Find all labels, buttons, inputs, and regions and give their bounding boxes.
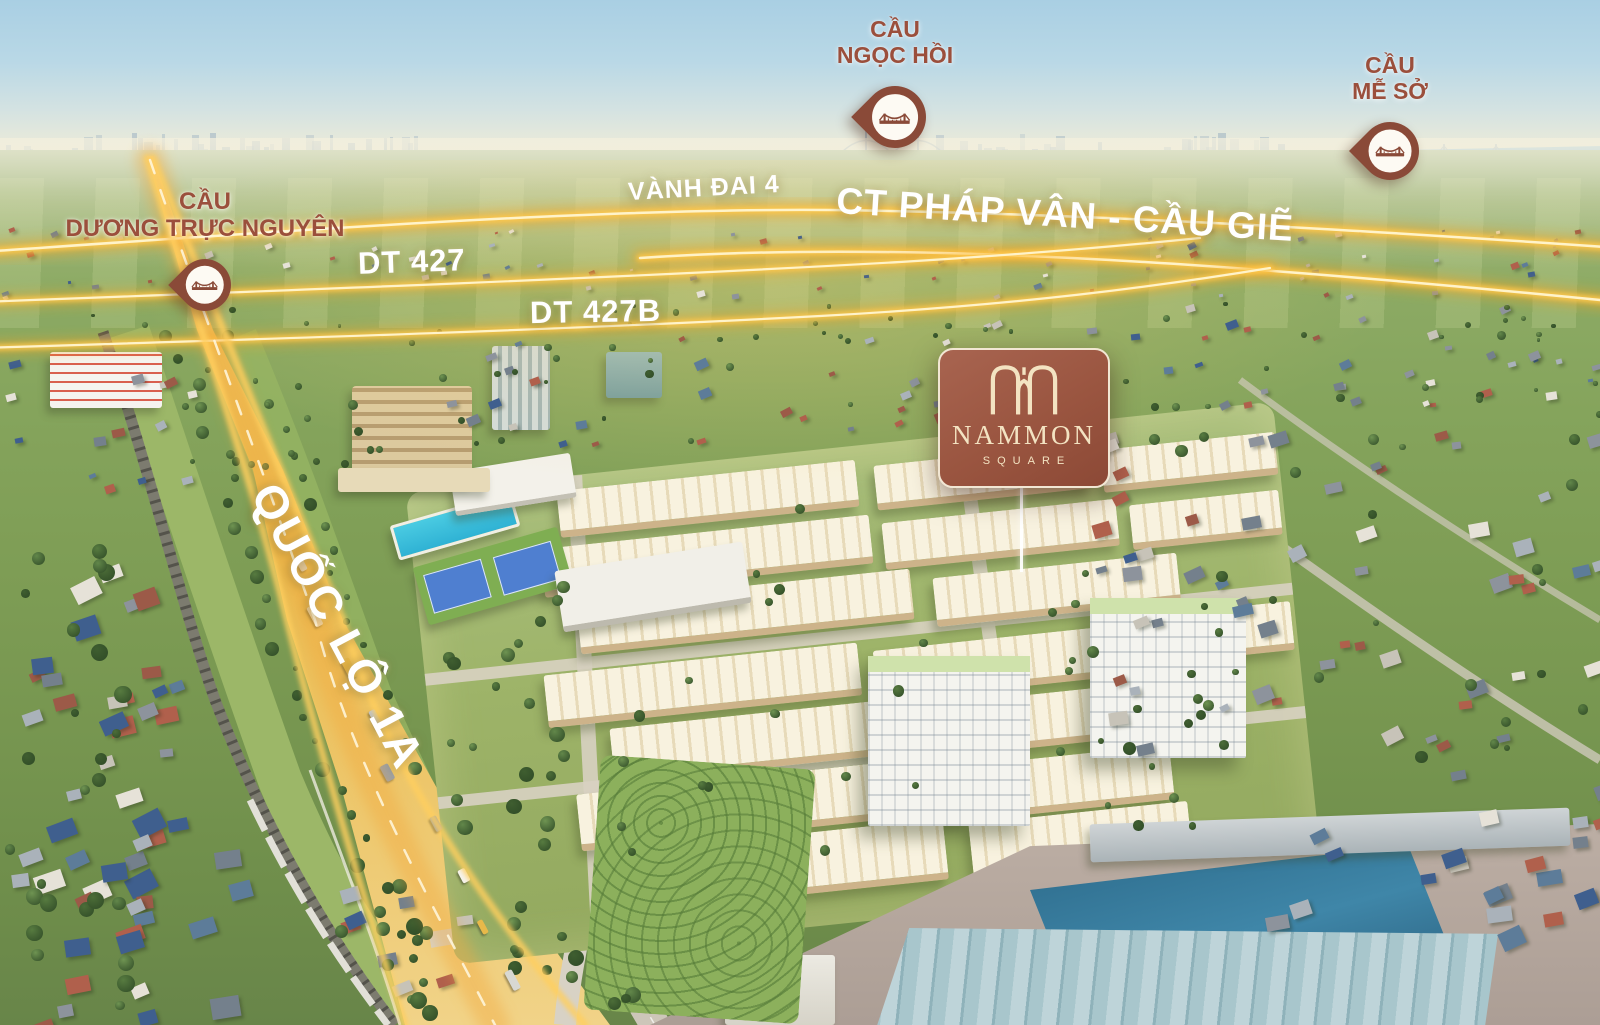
road-label-dt-427: DT 427 [357,242,466,282]
house [1553,245,1557,248]
house [504,265,510,270]
house [1136,742,1155,757]
house [800,415,808,422]
tree [540,816,556,832]
tree [553,355,560,362]
tree [1105,802,1111,808]
house [27,251,36,258]
tree [822,331,826,335]
tree [1536,332,1541,337]
road-label-dt-427b: DT 427B [530,293,662,331]
masterplan-aerial-map: VÀNH ĐAI 4 CT PHÁP VÂN - CẦU GIẼ DT 427 … [0,0,1600,1025]
tree [552,595,563,606]
tree [330,546,339,555]
tree [841,772,851,782]
house [803,260,810,266]
house [575,420,588,430]
house [446,400,457,408]
tree [1205,404,1211,410]
vehicle [429,815,443,832]
bridge-icon [872,95,918,141]
tree [542,965,552,975]
house [15,437,24,444]
tree [1566,479,1579,492]
house [1431,291,1438,296]
house [1218,400,1230,411]
tree [341,460,349,468]
tree [422,1005,438,1021]
house [1385,279,1390,284]
tree [1336,394,1344,402]
tree [546,771,556,781]
tree [32,552,45,565]
tree [182,403,189,410]
house [1261,388,1269,395]
tree [91,644,108,661]
house [1573,887,1598,909]
tree [1232,669,1239,676]
tree [494,371,500,377]
house [137,1009,159,1025]
house [1146,267,1150,271]
tree [1264,366,1268,370]
tree [912,782,919,789]
house [1289,899,1313,920]
tree [250,570,264,584]
tree [1048,608,1057,617]
house [1572,565,1591,579]
tree [1476,396,1483,403]
house [1425,734,1438,744]
tree [1082,570,1089,577]
tree [1596,411,1600,418]
tree [439,374,447,382]
tree [645,370,654,379]
house [1508,362,1517,369]
house [163,377,177,389]
house [1185,304,1196,314]
house [1183,566,1206,585]
tree [1149,434,1160,445]
tree [519,767,534,782]
house [1468,521,1490,538]
house [678,336,686,343]
map-pin-icon [1361,109,1419,193]
house [1045,261,1052,267]
tree [492,682,500,690]
tree [397,930,406,939]
house [138,477,147,485]
tree [535,616,546,627]
tree [888,316,893,321]
tree [1415,751,1428,764]
tree [374,906,386,918]
tree [87,892,104,909]
tree [437,329,442,334]
house [1525,856,1546,874]
tree [115,1001,124,1010]
house [1189,251,1198,259]
tree [248,461,255,468]
house [1194,362,1203,369]
house [1219,703,1230,712]
house [167,817,189,832]
house [398,896,415,909]
house [1361,254,1365,257]
house [31,657,54,675]
house [696,290,705,298]
house [1243,401,1252,409]
vehicle [476,919,489,935]
tree [313,458,320,465]
house [897,406,905,413]
house [1092,521,1113,539]
house [1323,292,1329,298]
house [486,352,499,362]
house [864,336,875,344]
house [1268,431,1290,449]
house [11,873,30,888]
house [210,995,242,1020]
house [1573,836,1589,849]
house [1381,725,1404,746]
tree [1569,434,1580,445]
house [780,407,793,418]
house [1594,781,1600,801]
tree [95,753,107,765]
house [339,886,361,904]
house [488,398,502,410]
house [1312,335,1320,341]
house [937,259,944,264]
tree [568,950,584,966]
house [515,341,522,347]
tree [409,954,418,963]
house [1358,316,1367,324]
tree [1098,738,1104,744]
tree [118,955,134,971]
tree [1465,679,1477,691]
tree [795,504,805,514]
tree [1301,332,1307,338]
tree [514,639,523,648]
house [1232,603,1254,618]
nammon-monogram-icon [987,362,1061,418]
house [988,247,995,253]
house [1319,659,1335,670]
project-badge: NAMMON SQUARE [938,348,1110,488]
tree [1439,335,1443,339]
house [1436,740,1451,753]
house [88,472,96,479]
house [152,684,168,698]
tree [1537,670,1546,679]
house [1339,359,1352,371]
house [57,1004,74,1018]
tree [1504,305,1509,310]
tree [295,383,302,390]
house [1312,269,1320,275]
house [1156,254,1161,258]
house [1325,847,1344,862]
house [116,787,145,809]
house [1324,482,1343,496]
tree [544,344,551,351]
badge-pointer-line [1020,484,1023,572]
tree [827,304,831,308]
house [1122,565,1142,582]
tree [474,441,479,446]
tree [292,690,303,701]
house [1095,566,1107,575]
house [900,391,912,401]
house [1219,294,1224,297]
tree [648,358,653,363]
tree [1532,564,1542,574]
house [960,258,965,262]
tree [501,648,515,662]
tree [893,685,904,696]
house [1587,379,1593,383]
tree [1368,434,1380,446]
house [1339,640,1350,648]
tree [538,838,551,851]
tree [114,686,131,703]
house [1257,620,1279,639]
tree [222,330,234,342]
house [160,749,174,758]
tree [312,738,318,744]
tree [1314,672,1325,683]
tree [265,642,279,656]
house [864,275,870,279]
house [943,339,952,347]
house [155,420,167,431]
tree [1501,717,1511,727]
project-subtitle: SQUARE [983,455,1071,467]
house [142,666,162,679]
house [630,269,634,272]
tree [1169,793,1179,803]
tree [392,879,407,894]
house [1265,914,1290,932]
tree [1196,710,1206,720]
house [1354,566,1368,576]
tree [376,446,383,453]
tree [1373,620,1379,626]
tree [1187,670,1196,679]
tree [557,581,569,593]
house [214,849,242,869]
tree [232,457,240,465]
tree [617,822,626,831]
tree [1172,403,1180,411]
tree [196,426,209,439]
tree [515,901,527,913]
house [1512,537,1534,556]
house [133,587,161,612]
tree [376,922,390,936]
tree [698,781,707,790]
map-pin-icon [864,73,926,163]
tree [685,677,693,685]
house [731,294,739,300]
house [731,233,736,237]
house [909,377,920,387]
house [1287,544,1307,563]
tree [1201,603,1207,609]
tree [753,334,759,340]
house [1521,582,1536,594]
tree [1465,322,1471,328]
house [991,320,1002,329]
marker-label: CẦUNGỌC HỒI [837,16,953,68]
house [65,974,91,995]
tree [1497,331,1506,340]
house [344,911,367,931]
house [228,879,254,901]
house [1429,403,1436,408]
tree [350,858,365,873]
tree [983,327,988,332]
house [829,371,836,377]
tree [602,416,607,421]
house [1358,231,1361,234]
tree [262,594,271,603]
house [1190,282,1195,286]
tree [255,618,267,630]
tree [293,666,298,671]
tree [774,584,785,595]
marker-label: CẦUDƯƠNG TRỰC NGUYÊN [66,188,345,243]
house [23,1018,59,1025]
tree [1123,379,1128,384]
house [1486,905,1513,923]
house [495,232,499,235]
tree [945,323,951,329]
house [931,276,936,280]
tree [618,756,629,767]
house [993,293,1000,299]
tree [92,773,106,787]
house [1420,873,1437,885]
tree [1056,747,1065,756]
house [188,390,199,399]
house [759,238,767,245]
house [1298,236,1305,242]
house [1164,366,1174,374]
tree [1504,745,1510,751]
house [1306,263,1311,267]
house [1033,282,1042,290]
house [1521,262,1528,268]
house [1,291,9,297]
house [1545,391,1557,401]
house [456,915,473,926]
house [436,974,456,989]
house [1309,828,1329,846]
marker-cau-me-so: CẦUMỄ SỞ [1290,52,1490,194]
house [1442,229,1446,232]
tree [112,729,121,738]
tree [382,882,394,894]
tree [80,785,90,795]
house [1225,319,1239,331]
tree [1133,705,1142,714]
tree [717,337,722,342]
house [1586,433,1600,449]
tree [223,498,233,508]
house [1129,686,1140,695]
tree [1578,704,1588,714]
tree [498,437,505,444]
house [1527,271,1535,277]
tree [409,340,415,346]
house [101,862,128,883]
tree [1163,315,1170,322]
house [1133,615,1150,629]
tree [262,463,269,470]
tree [31,949,43,961]
house [104,484,116,495]
house [698,387,712,400]
house [1113,467,1129,482]
house [694,358,709,371]
tree [1551,324,1555,328]
tree [1184,719,1193,728]
house [6,393,17,402]
house [131,374,145,386]
tree [1199,432,1210,443]
tree [321,522,330,531]
tree [1219,740,1229,750]
tree [1189,822,1196,829]
house [1108,710,1129,726]
tree [524,698,535,709]
tree [549,727,565,743]
house [1241,516,1262,531]
house [1592,557,1600,571]
tree [1149,763,1156,770]
house [1248,436,1265,448]
tree [40,894,58,912]
house [1356,525,1378,543]
house [529,377,540,387]
house [1574,230,1581,235]
tree [447,739,455,747]
tree [566,971,578,983]
tree [231,474,239,482]
house [1497,925,1527,952]
house [111,427,126,438]
house [9,227,17,234]
tree [1215,628,1224,637]
tree [820,845,831,856]
tree [1269,596,1277,604]
house [1451,441,1461,449]
house [690,275,698,281]
tree [299,714,306,721]
tree [838,334,843,339]
house [64,937,91,958]
tree [1503,318,1509,324]
tree [363,834,371,842]
tree [1534,388,1538,392]
house [1350,397,1362,407]
tree [628,848,637,857]
tree [506,799,521,814]
tree [348,400,358,410]
